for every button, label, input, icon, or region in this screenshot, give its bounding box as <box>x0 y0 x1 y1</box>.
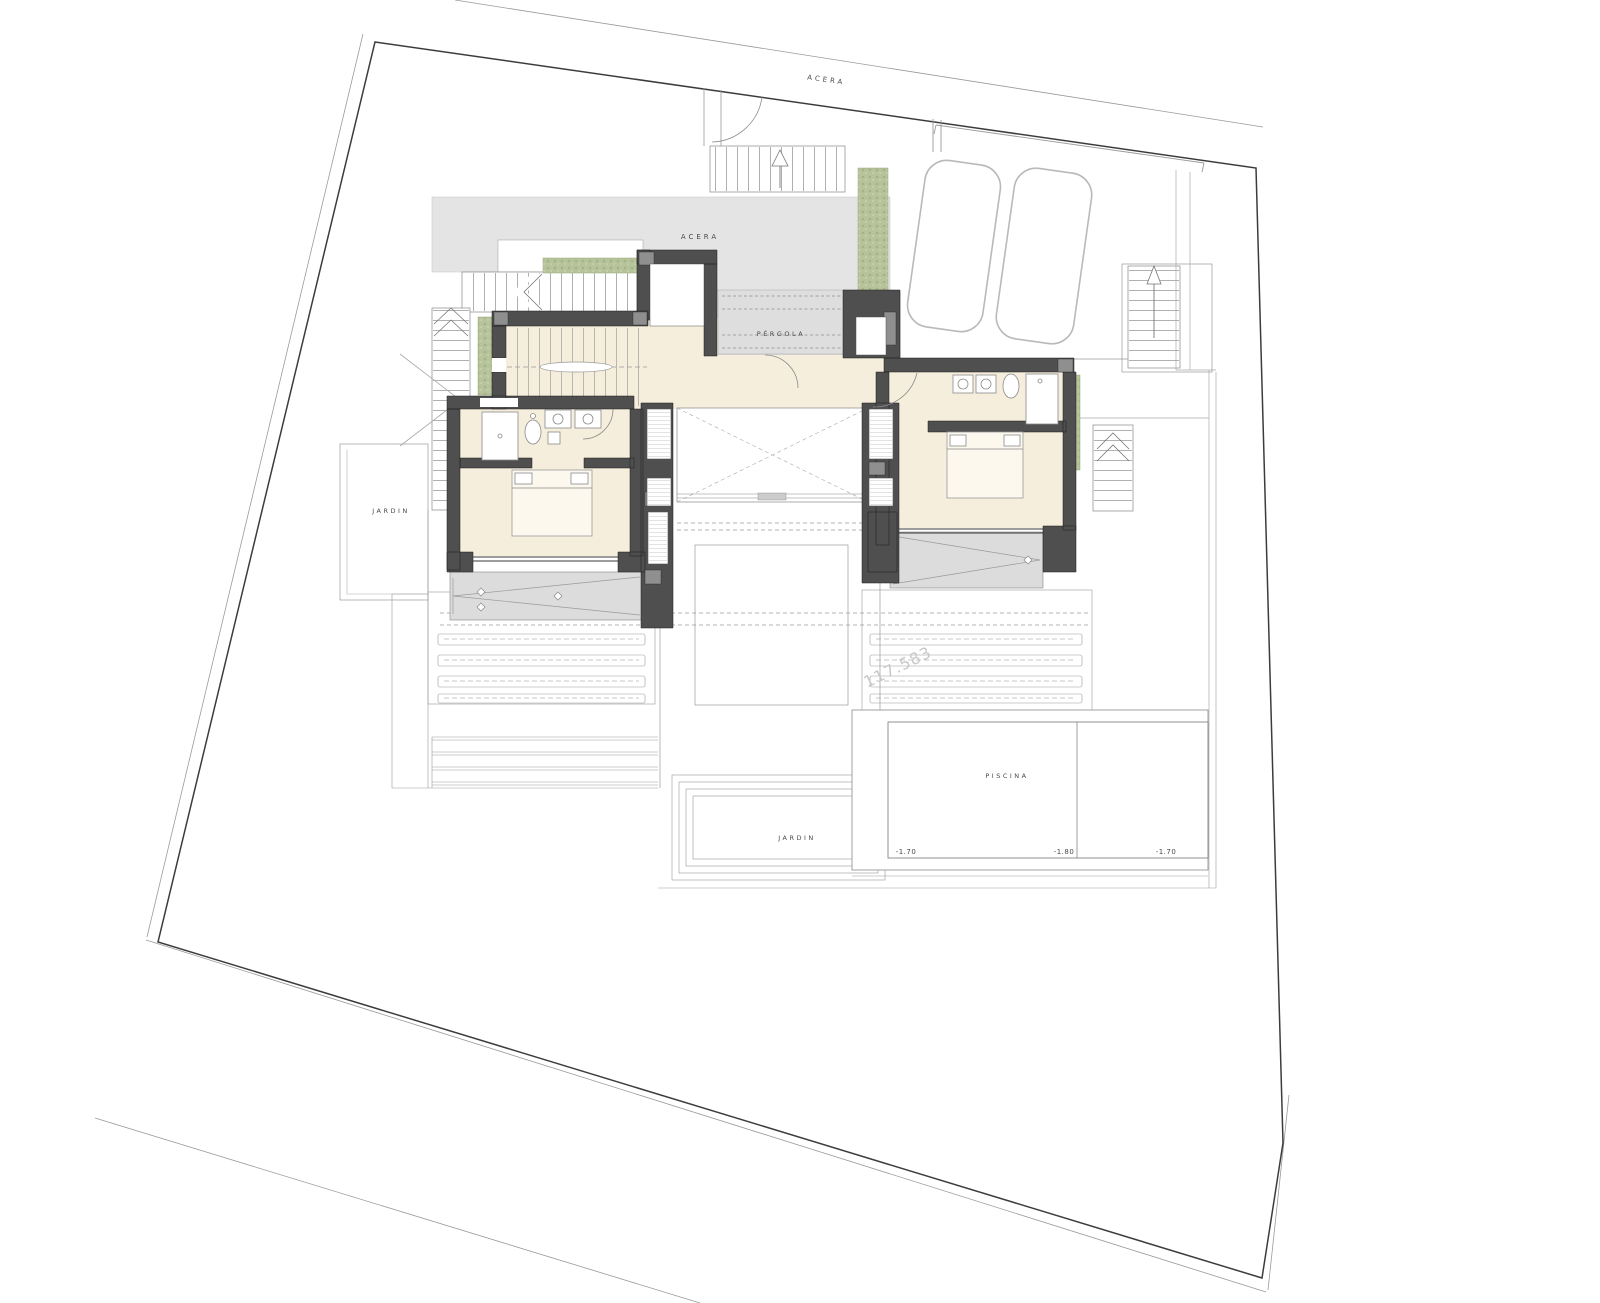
vestibule-interior <box>650 264 704 326</box>
sink-left-2-basin <box>583 414 593 424</box>
bath-left-window <box>480 398 518 407</box>
label-piscina: PISCINA <box>985 772 1028 780</box>
right-lower-stair-treads <box>1094 427 1132 510</box>
terrace-left-deck <box>450 572 643 620</box>
bed-right <box>947 432 1023 498</box>
label-pool-depth-middle: -1.80 <box>1054 848 1075 856</box>
planter-right-of-entry <box>858 168 888 293</box>
planter-stair-hall <box>478 317 494 395</box>
bed-left-pillow-1 <box>515 473 532 484</box>
right-lower-stair <box>1093 425 1133 511</box>
pergola-area <box>718 290 845 354</box>
central-void <box>677 408 868 502</box>
floor-plan: ACERA ACERA PÉRGOLA JARDIN JARDIN PISCIN… <box>0 0 1600 1303</box>
label-acera-street: ACERA <box>807 73 846 86</box>
terrace-right-deck <box>890 532 1043 588</box>
bed-right-pillow-1 <box>950 435 966 446</box>
interior-stair-handrail <box>540 362 612 372</box>
label-jardin-bottom: JARDIN <box>777 834 816 842</box>
label-pergola: PÉRGOLA <box>757 329 805 338</box>
entry-stair-treads <box>712 147 843 191</box>
sink-left-1-basin <box>553 414 563 424</box>
entry-stair <box>710 146 845 192</box>
bed-right-pillow-2 <box>1004 435 1020 446</box>
site-boundary <box>95 0 1289 1303</box>
right-upper-stair <box>1122 264 1212 372</box>
upper-left-stair <box>462 272 637 312</box>
terrace-right <box>890 529 1043 588</box>
bed-left <box>512 470 592 536</box>
floor-plan-canvas: ACERA ACERA PÉRGOLA JARDIN JARDIN PISCIN… <box>0 0 1600 1303</box>
toilet-left <box>525 420 541 444</box>
street-curb-line <box>95 1118 700 1303</box>
bed-left-pillow-2 <box>571 473 588 484</box>
pool-basin <box>888 722 1208 858</box>
cabinet-left <box>548 432 560 444</box>
shower-left-drain <box>498 434 502 438</box>
hall-west-window <box>492 358 506 372</box>
interior-stair <box>507 328 647 406</box>
corridor-east-floor <box>718 355 888 409</box>
label-pool-depth-left: -1.70 <box>896 848 917 856</box>
upper-left-stair-treads <box>464 273 635 311</box>
pergola-band <box>718 290 845 354</box>
shower-right-drain <box>1038 379 1042 383</box>
pergola-closet-cell <box>856 317 886 355</box>
toilet-right <box>1003 374 1019 398</box>
label-jardin-left: JARDIN <box>371 507 410 515</box>
sink-right-1-basin <box>958 379 968 389</box>
void-rail-post <box>758 493 786 500</box>
pool <box>852 710 1208 870</box>
label-acera-terrace: ACERA <box>681 233 719 241</box>
toilet-left-flush <box>531 414 536 419</box>
planter-top <box>543 258 643 273</box>
sink-right-2-basin <box>981 379 991 389</box>
label-pool-depth-right: -1.70 <box>1156 848 1177 856</box>
